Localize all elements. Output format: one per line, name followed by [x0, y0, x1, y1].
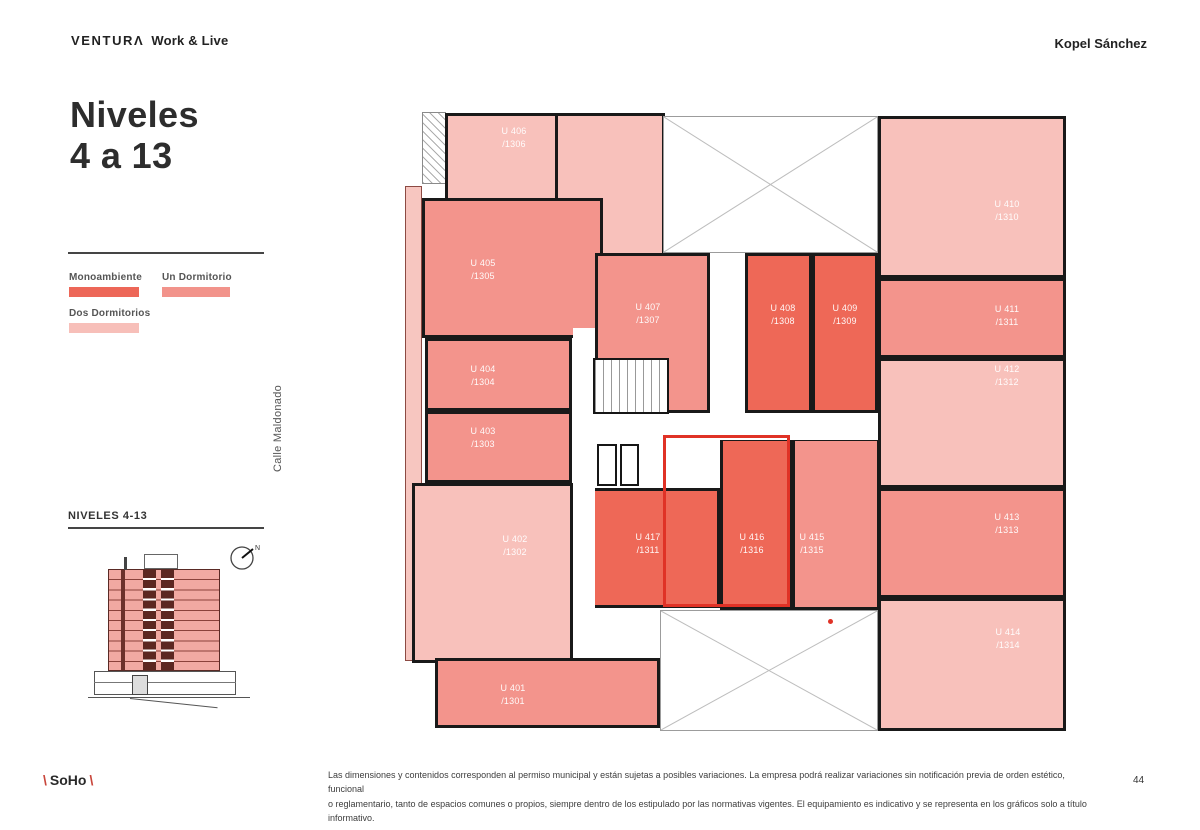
elevator-shaft	[620, 444, 639, 486]
footer-brand-slash-right: \	[89, 772, 93, 788]
legend-swatch-dos-dormitorios	[69, 323, 139, 333]
elevation-antenna	[124, 557, 127, 570]
legend-item-monoambiente: Monoambiente	[69, 272, 142, 297]
unit-label-u-411: U 411/1311	[995, 303, 1019, 329]
unit-u-414	[878, 598, 1066, 731]
architect-name: Kopel Sánchez	[1055, 36, 1147, 51]
elevation-roof-box	[144, 554, 178, 569]
unit-u-412	[878, 358, 1066, 488]
elevation-ground-line	[88, 697, 250, 698]
unit-u-402	[412, 483, 573, 663]
brochure-page: VENTURΛWork & Live Kopel Sánchez Niveles…	[0, 0, 1200, 830]
unit-label-u-417: U 417/1311	[635, 531, 660, 557]
legend-label-dos-dormitorios: Dos Dormitorios	[69, 308, 150, 319]
unit-u-405	[422, 198, 603, 338]
highlighted-unit-outline	[663, 435, 790, 607]
elevation-base	[94, 671, 236, 695]
page-number: 44	[1133, 775, 1144, 786]
unit-label-u-414: U 414/1314	[995, 626, 1020, 652]
unit-label-u-406: U 406/1306	[501, 125, 526, 151]
levels-panel-divider	[68, 527, 264, 529]
corridor-vertical	[573, 328, 595, 658]
unit-label-u-415: U 415/1315	[799, 531, 824, 557]
elevation-column	[121, 570, 125, 670]
unit-u-413	[878, 488, 1066, 598]
unit-label-u-410: U 410/1310	[994, 198, 1019, 224]
disclaimer-line2: o reglamentario, tanto de espacios comun…	[328, 797, 1090, 826]
unit-label-u-401: U 401/1301	[500, 682, 525, 708]
elevation-tower-highlighted-floors	[108, 569, 220, 671]
unit-u-411	[878, 278, 1066, 358]
unit-label-u-402: U 402/1302	[502, 533, 527, 559]
unit-label-u-409: U 409/1309	[832, 302, 857, 328]
unit-label-u-413: U 413/1313	[994, 511, 1019, 537]
elevation-core	[132, 675, 148, 695]
elevation-ramp-line	[130, 698, 218, 708]
courtyard-cross-lines	[661, 611, 877, 730]
balcony-hatch	[422, 112, 446, 184]
unit-label-u-404: U 404/1304	[470, 363, 495, 389]
brand-logo: VENTURΛWork & Live	[71, 33, 228, 48]
unit-label-u-412: U 412/1312	[994, 363, 1019, 389]
compass-north-label: N	[255, 545, 260, 552]
unit-u-408	[745, 253, 812, 413]
legend-swatch-un-dormitorio	[162, 287, 230, 297]
legend-item-un-dormitorio: Un Dormitorio	[162, 272, 232, 297]
legend-label-un-dormitorio: Un Dormitorio	[162, 272, 232, 283]
unit-u-403	[425, 411, 572, 483]
brand-tagline: Work & Live	[151, 33, 228, 48]
floor-plan: U 406/1306U 405/1305U 404/1304U 403/1303…	[400, 106, 1075, 738]
footer-brand-slash-left: \	[43, 772, 47, 788]
page-title-line1: Niveles	[70, 94, 199, 135]
courtyard-cross-lines	[664, 117, 877, 252]
disclaimer: Las dimensiones y contenidos corresponde…	[328, 768, 1090, 826]
unit-u-409	[812, 253, 878, 413]
page-title: Niveles 4 a 13	[70, 94, 199, 176]
brand-name: VENTURΛ	[71, 33, 144, 48]
elevation-window-strip	[161, 570, 174, 670]
elevator-shaft	[597, 444, 617, 486]
elevation-base-line	[94, 682, 236, 683]
legend-label-monoambiente: Monoambiente	[69, 272, 142, 283]
unit-label-u-405: U 405/1305	[470, 257, 495, 283]
unit-label-u-407: U 407/1307	[635, 301, 660, 327]
building-elevation	[88, 551, 253, 709]
legend-item-dos-dormitorios: Dos Dormitorios	[69, 308, 150, 333]
courtyard-top	[663, 116, 878, 253]
red-dot-marker	[828, 619, 833, 624]
courtyard-bottom	[660, 610, 878, 731]
legend: Monoambiente Un Dormitorio Dos Dormitori…	[68, 252, 278, 352]
unit-u-401	[435, 658, 660, 728]
page-title-line2: 4 a 13	[70, 135, 199, 176]
footer-brand: \SoHo\	[40, 772, 96, 788]
legend-divider	[68, 252, 264, 254]
street-label: Calle Maldonado	[272, 372, 284, 472]
unit-label-u-403: U 403/1303	[470, 425, 495, 451]
unit-u-404	[425, 338, 572, 411]
footer-brand-name: SoHo	[50, 772, 87, 788]
stairwell	[593, 358, 669, 414]
unit-u-410	[878, 116, 1066, 278]
unit-u-415	[792, 438, 880, 610]
disclaimer-line1: Las dimensiones y contenidos corresponde…	[328, 768, 1090, 797]
unit-label-u-408: U 408/1308	[770, 302, 795, 328]
levels-panel-label: NIVELES 4-13	[68, 510, 147, 522]
legend-swatch-monoambiente	[69, 287, 139, 297]
elevation-window-strip	[143, 570, 156, 670]
